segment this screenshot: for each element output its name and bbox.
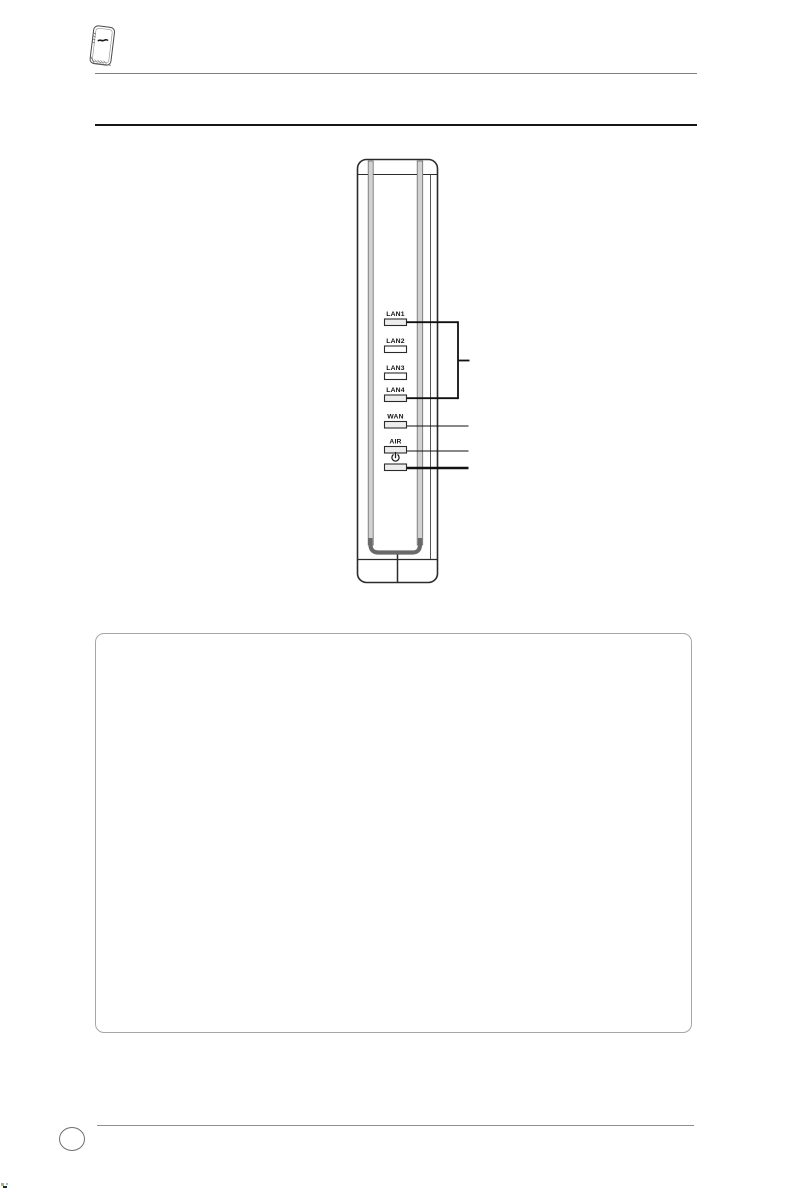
led-window-lan1 bbox=[385, 319, 407, 326]
led-window-power bbox=[385, 464, 407, 471]
device-right-stripe bbox=[417, 161, 423, 545]
led-label-lan4: LAN4 bbox=[386, 387, 405, 394]
router-thumbnail-icon bbox=[86, 24, 122, 74]
header-rule-thick bbox=[95, 124, 697, 126]
device-left-stripe bbox=[368, 161, 373, 545]
led-window-lan3 bbox=[385, 373, 407, 380]
front-panel-diagram: LAN1 LAN2 LAN3 LAN4 WAN AIR bbox=[340, 155, 480, 590]
footer-rule bbox=[97, 1125, 694, 1126]
led-window-wan bbox=[385, 422, 407, 429]
led-label-wan: WAN bbox=[387, 414, 403, 421]
scan-artifact bbox=[1, 1182, 11, 1190]
led-label-lan3: LAN3 bbox=[386, 365, 405, 372]
header-rule-thin bbox=[95, 73, 697, 74]
page-number-circle bbox=[59, 1127, 85, 1151]
led-label-air: AIR bbox=[389, 439, 401, 446]
led-label-lan2: LAN2 bbox=[386, 338, 405, 345]
manual-page: LAN1 LAN2 LAN3 LAN4 WAN AIR bbox=[0, 0, 795, 1192]
led-label-lan1: LAN1 bbox=[386, 311, 405, 318]
led-window-lan2 bbox=[385, 346, 407, 353]
note-box bbox=[95, 633, 692, 1033]
led-window-lan4 bbox=[385, 395, 407, 402]
